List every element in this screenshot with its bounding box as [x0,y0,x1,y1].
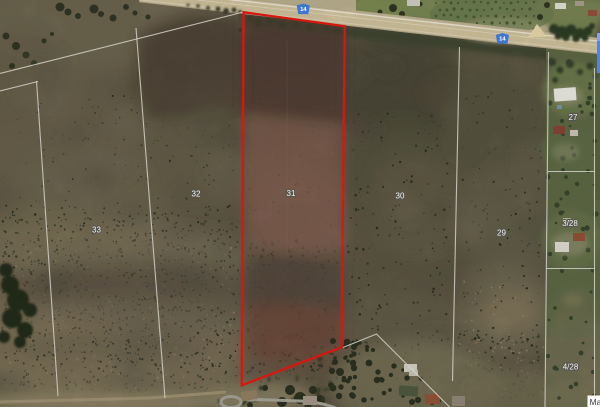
svg-text:14: 14 [499,37,506,43]
svg-text:4/28: 4/28 [563,363,579,372]
svg-text:32: 32 [192,190,201,199]
svg-text:33: 33 [92,226,101,235]
svg-text:3/28: 3/28 [562,219,578,228]
svg-text:27: 27 [569,113,578,122]
svg-text:14: 14 [300,7,307,13]
svg-text:Ma: Ma [590,397,600,407]
svg-text:31: 31 [287,189,296,198]
svg-text:30: 30 [396,192,405,201]
svg-text:29: 29 [497,229,506,238]
